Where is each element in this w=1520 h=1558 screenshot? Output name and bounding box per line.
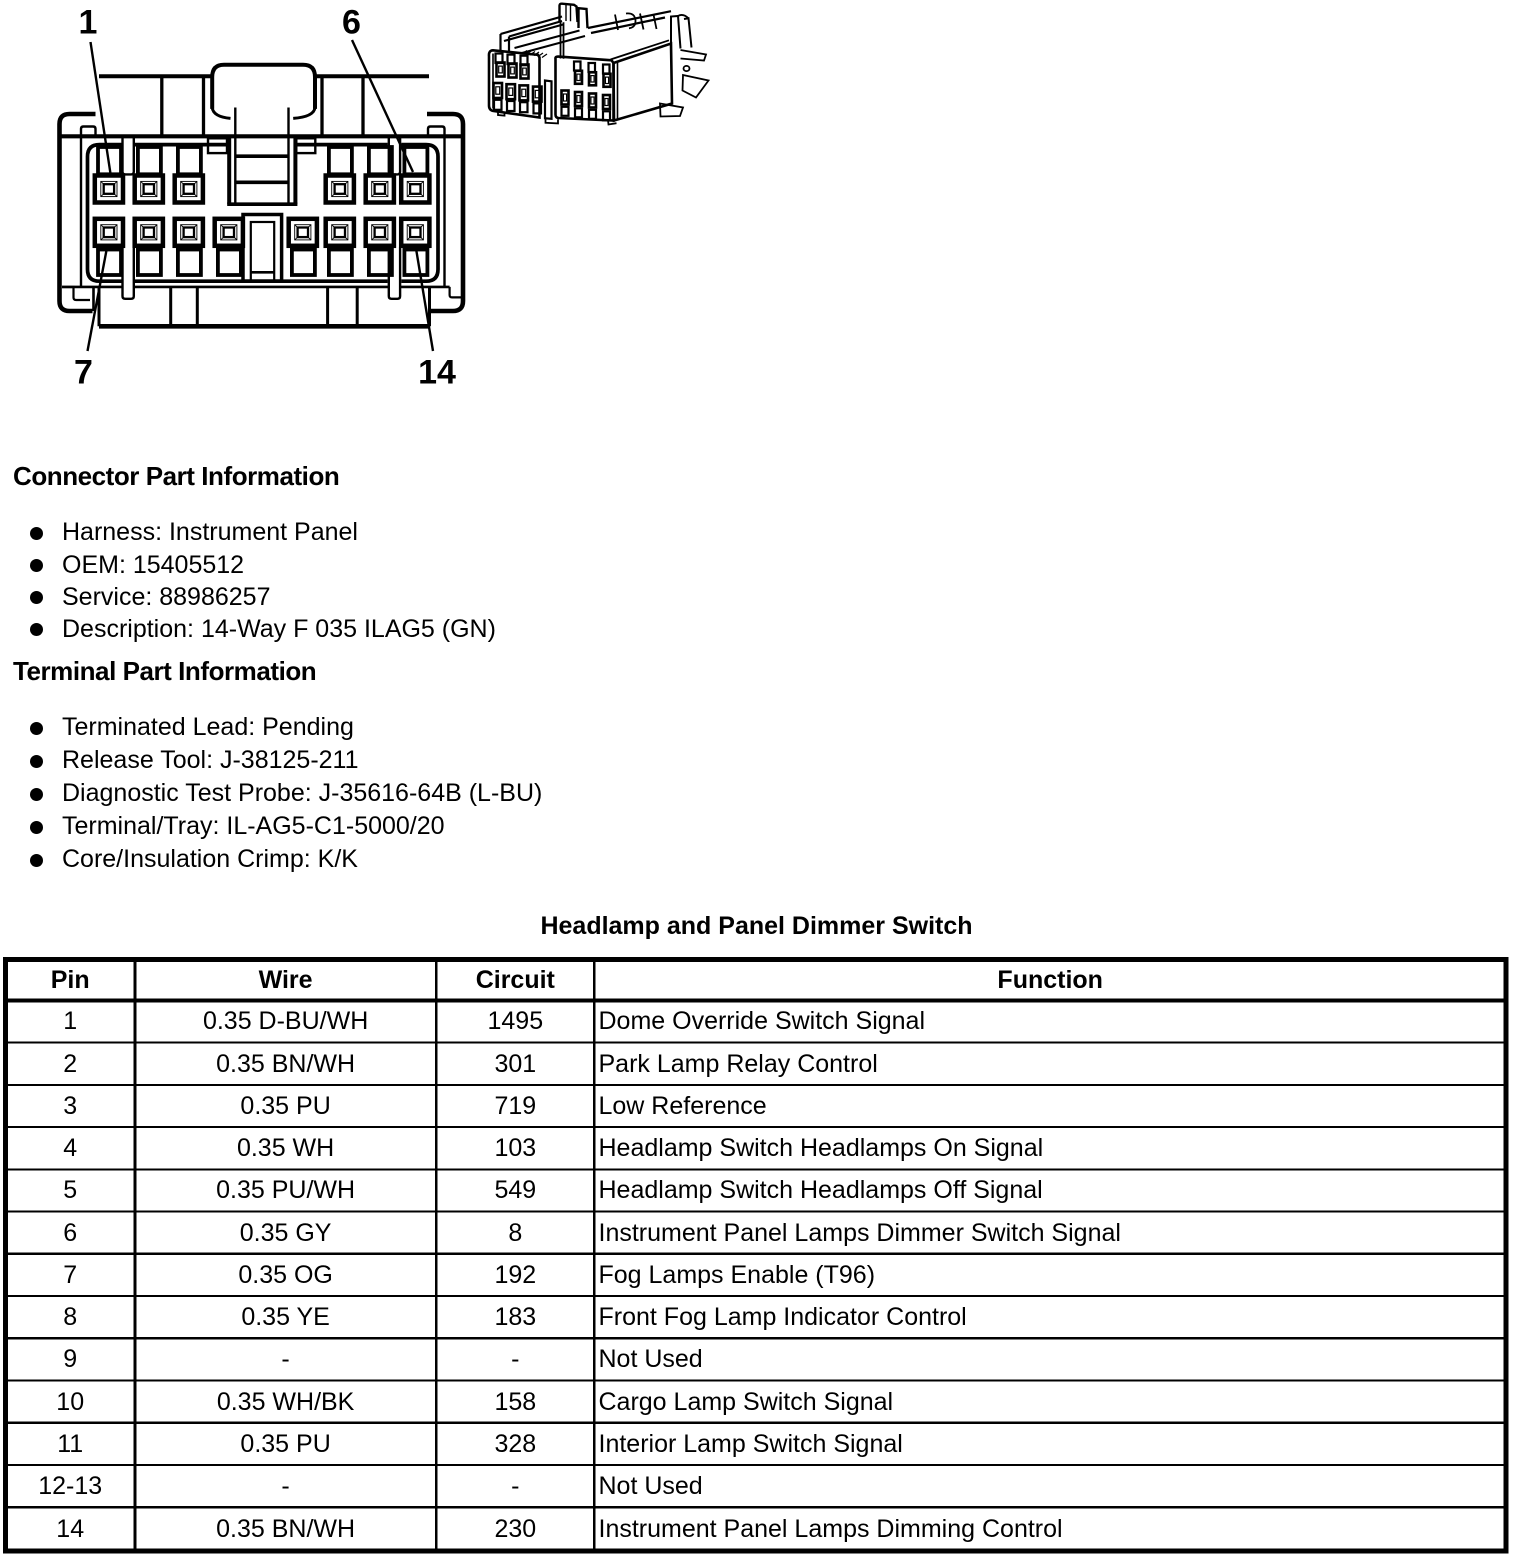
svg-text:6: 6 xyxy=(342,4,361,42)
svg-text:1: 1 xyxy=(79,4,98,42)
svg-text:7: 7 xyxy=(74,354,93,392)
svg-text:14: 14 xyxy=(418,354,456,392)
